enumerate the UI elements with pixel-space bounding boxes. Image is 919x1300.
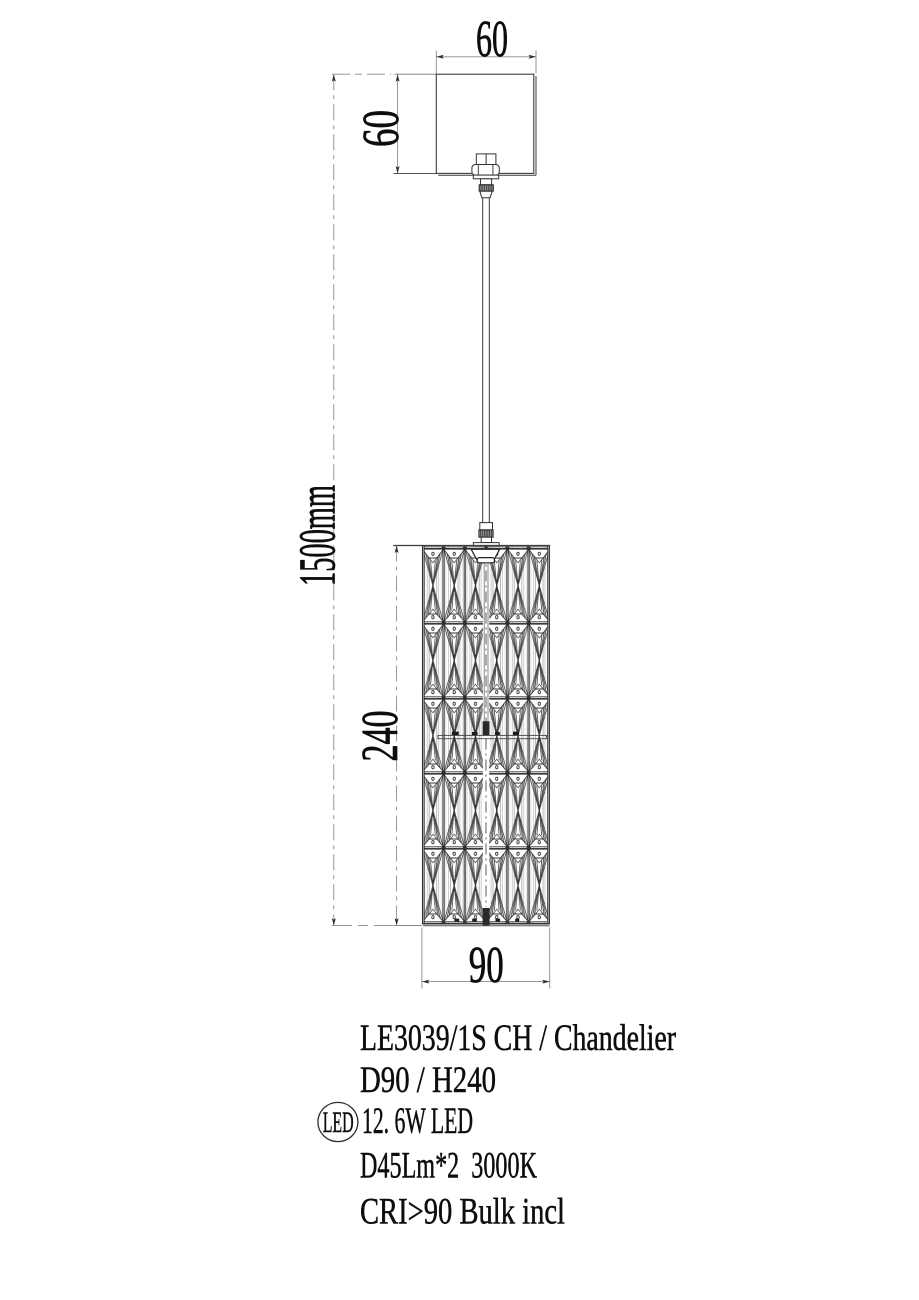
svg-text:240: 240 <box>352 711 409 762</box>
svg-text:CRI>90 Bulk incl: CRI>90 Bulk incl <box>360 1192 565 1233</box>
svg-text:LE3039/1S CH / Chandelier: LE3039/1S CH / Chandelier <box>360 1018 676 1059</box>
svg-text:60: 60 <box>476 11 508 68</box>
svg-text:1500mm: 1500mm <box>289 485 346 586</box>
svg-text:60: 60 <box>353 110 410 147</box>
svg-text:D45Lm*2 3000K: D45Lm*2 3000K <box>360 1146 537 1187</box>
svg-text:D90 / H240: D90 / H240 <box>360 1060 496 1101</box>
svg-text:90: 90 <box>469 937 504 994</box>
svg-text:LED: LED <box>323 1106 354 1139</box>
svg-text:12. 6W LED: 12. 6W LED <box>362 1101 473 1142</box>
